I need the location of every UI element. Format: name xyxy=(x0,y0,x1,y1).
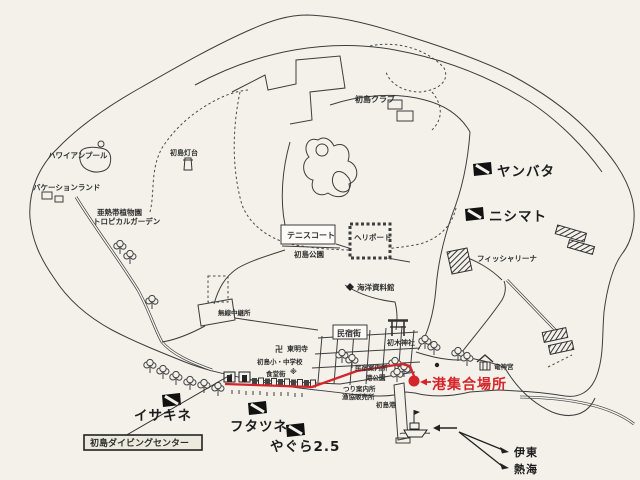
label-port-park: 港公園 xyxy=(366,373,386,382)
meeting-point-dot xyxy=(409,376,420,387)
poi-dot xyxy=(435,363,439,367)
manji-symbol: 卍 xyxy=(275,345,283,354)
label-atami: 熱海 xyxy=(514,462,538,476)
label-shokudo-street: 食堂街 xyxy=(265,369,286,378)
dive-flag-icon-yanbata xyxy=(473,162,492,176)
label-school: 初島小・中学校 xyxy=(257,357,303,366)
label-minshuku-street: 民宿街 xyxy=(337,328,361,338)
label-lighthouse: 初島灯台 xyxy=(170,148,198,157)
golf-pond xyxy=(304,138,357,197)
tree-icon xyxy=(144,359,156,373)
label-diving-center: 初島ダイビングセンター xyxy=(90,437,189,449)
label-vacation-land: バケーションランド xyxy=(33,183,100,192)
label-radio-relay: 無線中継所 xyxy=(218,308,251,317)
marina-pier xyxy=(447,248,472,274)
label-hatsushima-club: 初島クラブ xyxy=(355,94,395,104)
slipway xyxy=(542,328,568,343)
label-ryujingu: 竜神宮 xyxy=(494,362,514,371)
label-hawaiian-pool: ハワイアンプール xyxy=(48,150,108,160)
dive-site-label-futatsune: フタツネ xyxy=(230,419,288,435)
label-ito: 伊東 xyxy=(513,445,538,459)
breakwater xyxy=(520,397,634,424)
dive-site-label-isakine: イサキネ xyxy=(134,408,192,424)
label-hatsushima-port: 初島港 xyxy=(376,400,396,409)
hatsushima-map-svg: ハワイアンプール バケーションランド 初島灯台 亜熱帯植物園 トロピカルガーデン… xyxy=(0,0,640,480)
dive-flag-icon-futatsune xyxy=(248,401,267,415)
ferry-arrow-left xyxy=(433,425,440,432)
vacation-land-building xyxy=(42,192,52,199)
label-heliport: ヘリポート xyxy=(354,232,392,242)
atami-arrowhead xyxy=(500,463,509,470)
label-fishing-info: つり案内所 xyxy=(343,384,376,393)
walking-trails xyxy=(150,44,572,367)
ferry-group xyxy=(400,410,509,470)
dive-flag-icon-yagura xyxy=(286,423,305,437)
label-tennis-court: テニスコート xyxy=(287,231,335,240)
label-gyokyo-shop: 漁協販売所 xyxy=(342,392,375,401)
label-minshuku-info: 民宿案内所 xyxy=(355,363,388,372)
label-fisherina: フィッシャリーナ xyxy=(477,254,537,263)
label-hatsuki-shrine: 初木神社 xyxy=(387,338,415,347)
dive-site-label-yanbata: ヤンバタ xyxy=(497,164,555,180)
dive-flag-icon-nishimato xyxy=(465,207,484,221)
label-tomeiji: 東明寺 xyxy=(287,344,308,353)
meeting-arrow xyxy=(420,379,427,386)
label-tropical-garden: トロピカルガーデン xyxy=(93,216,161,226)
asterisk-symbol: ※ xyxy=(290,367,297,376)
map-labels: ハワイアンプール バケーションランド 初島灯台 亜熱帯植物園 トロピカルガーデン… xyxy=(33,94,555,476)
label-marine-museum: 海洋資料館 xyxy=(357,282,395,292)
label-port-meeting-point: 港集合場所 xyxy=(432,376,507,393)
label-botanical-garden: 亜熱帯植物園 xyxy=(97,207,142,217)
dive-site-label-nishimato: ニシマト xyxy=(489,209,547,225)
map-canvas: ハワイアンプール バケーションランド 初島灯台 亜熱帯植物園 トロピカルガーデン… xyxy=(0,0,640,480)
dive-site-label-yagura: やぐら2.5 xyxy=(270,439,340,455)
ito-arrowhead xyxy=(500,447,509,454)
label-hatsushima-park: 初島公園 xyxy=(294,249,324,259)
